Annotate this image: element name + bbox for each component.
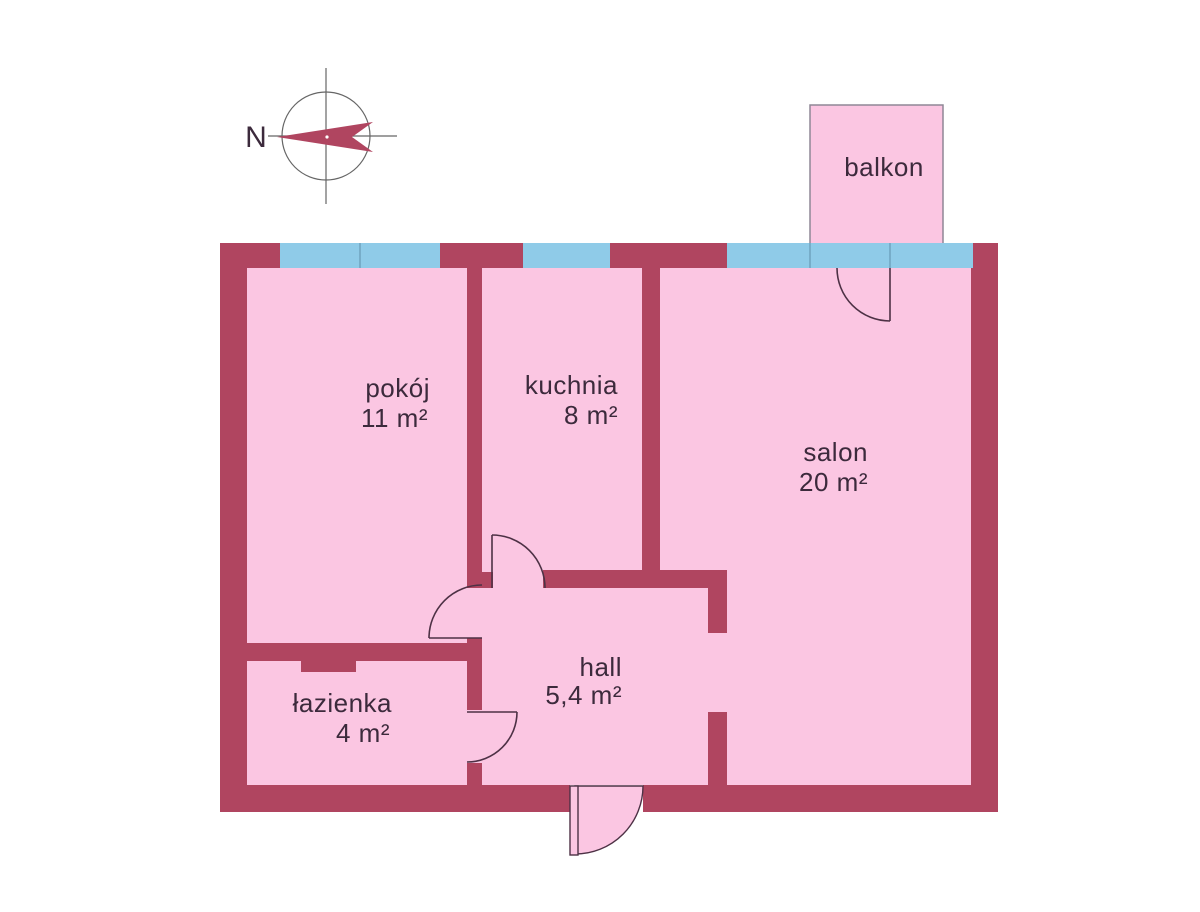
room-label-salon: salon [803,437,868,467]
compass-north-label: N [245,121,267,154]
compass: N [245,68,397,204]
wall-hall-salon-lower [708,712,727,785]
room-label-kuchnia: kuchnia [525,370,618,400]
floor-plan-page: N balkon pokój 11 m² kuchnia 8 m² salon … [0,0,1200,912]
compass-pivot-dot [325,135,328,138]
wall-lazienka-right-lower [467,763,482,785]
room-area-salon: 20 m² [799,467,868,497]
wall-kuchnia-bottom [543,570,727,588]
window-salon [727,243,973,268]
wall-bottom-right [643,785,998,812]
room-label-lazienka: łazienka [293,688,392,718]
entrance-door-leaf [570,786,578,855]
room-label-hall: hall [580,652,622,682]
wall-lazienka-right-upper [467,638,482,710]
entrance-door-swing [575,786,643,854]
wall-hall-salon-upper [708,588,727,633]
room-area-lazienka: 4 m² [336,718,390,748]
room-label-balkon: balkon [844,152,924,182]
room-area-hall: 5,4 m² [545,680,622,710]
wall-bottom-left [220,785,570,812]
wall-lazienka-notch [301,661,356,672]
compass-needle-icon [277,122,373,152]
wall-pokoj-right [467,268,482,572]
floor-plan-svg: N balkon pokój 11 m² kuchnia 8 m² salon … [0,0,1200,912]
wall-right [971,243,998,812]
room-label-pokoj: pokój [365,373,430,403]
room-area-pokoj: 11 m² [361,403,428,433]
wall-left [220,243,247,812]
wall-pokoj-bottom [220,643,482,661]
window-kuchnia [523,243,610,268]
room-area-kuchnia: 8 m² [564,400,618,430]
wall-kuchnia-salon [642,268,660,570]
